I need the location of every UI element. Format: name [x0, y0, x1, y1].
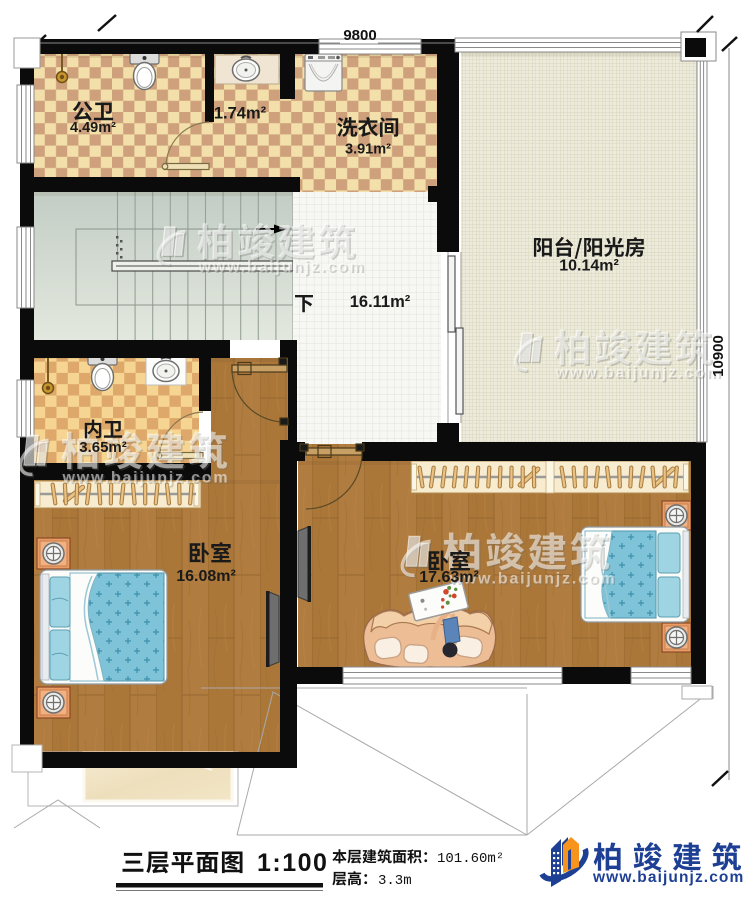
svg-text:3.65m²: 3.65m²: [79, 439, 127, 456]
svg-text:www.baijunjz.com: www.baijunjz.com: [555, 364, 723, 381]
svg-text:www.baijunjz.com: www.baijunjz.com: [198, 258, 366, 275]
svg-text:3.3m: 3.3m: [378, 873, 412, 889]
svg-text:16.11m²: 16.11m²: [350, 293, 411, 311]
svg-text:17.63m²: 17.63m²: [419, 569, 479, 586]
svg-text:www.baijunjz.com: www.baijunjz.com: [592, 869, 744, 886]
svg-text:9800: 9800: [343, 27, 376, 44]
svg-text:1.74m²: 1.74m²: [214, 105, 267, 123]
svg-text:4.49m²: 4.49m²: [70, 120, 116, 136]
svg-text:101.60m²: 101.60m²: [437, 851, 504, 867]
svg-text:10900: 10900: [710, 335, 727, 377]
svg-text:3.91m²: 3.91m²: [345, 142, 391, 158]
svg-text:www.baijunjz.com: www.baijunjz.com: [62, 469, 230, 486]
svg-text:16.08m²: 16.08m²: [176, 568, 236, 585]
svg-text:1:100: 1:100: [257, 849, 328, 877]
svg-text:10.14m²: 10.14m²: [559, 258, 619, 275]
